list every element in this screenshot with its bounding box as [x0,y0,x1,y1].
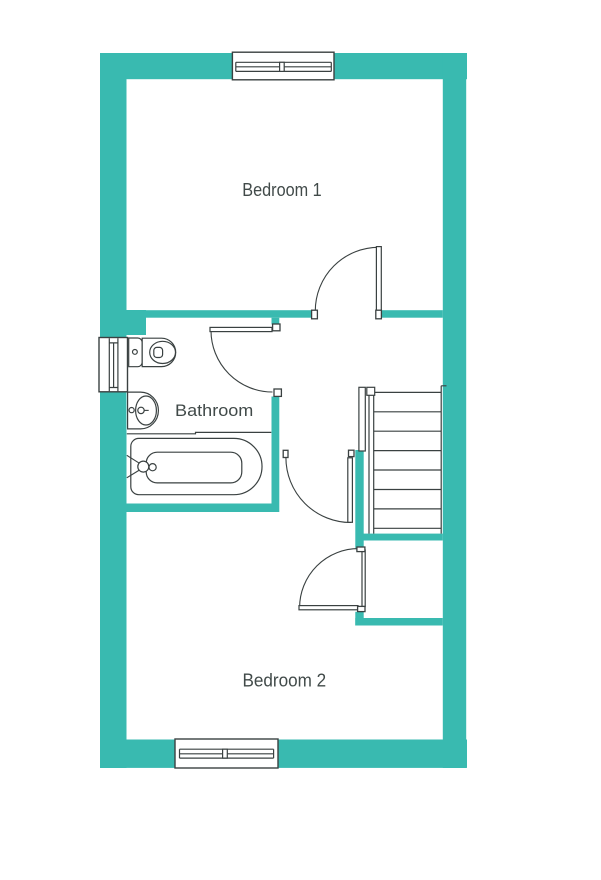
svg-text:Bathroom: Bathroom [175,402,253,420]
svg-text:Bedroom 1: Bedroom 1 [242,179,321,200]
svg-text:Bedroom 2: Bedroom 2 [243,669,327,690]
